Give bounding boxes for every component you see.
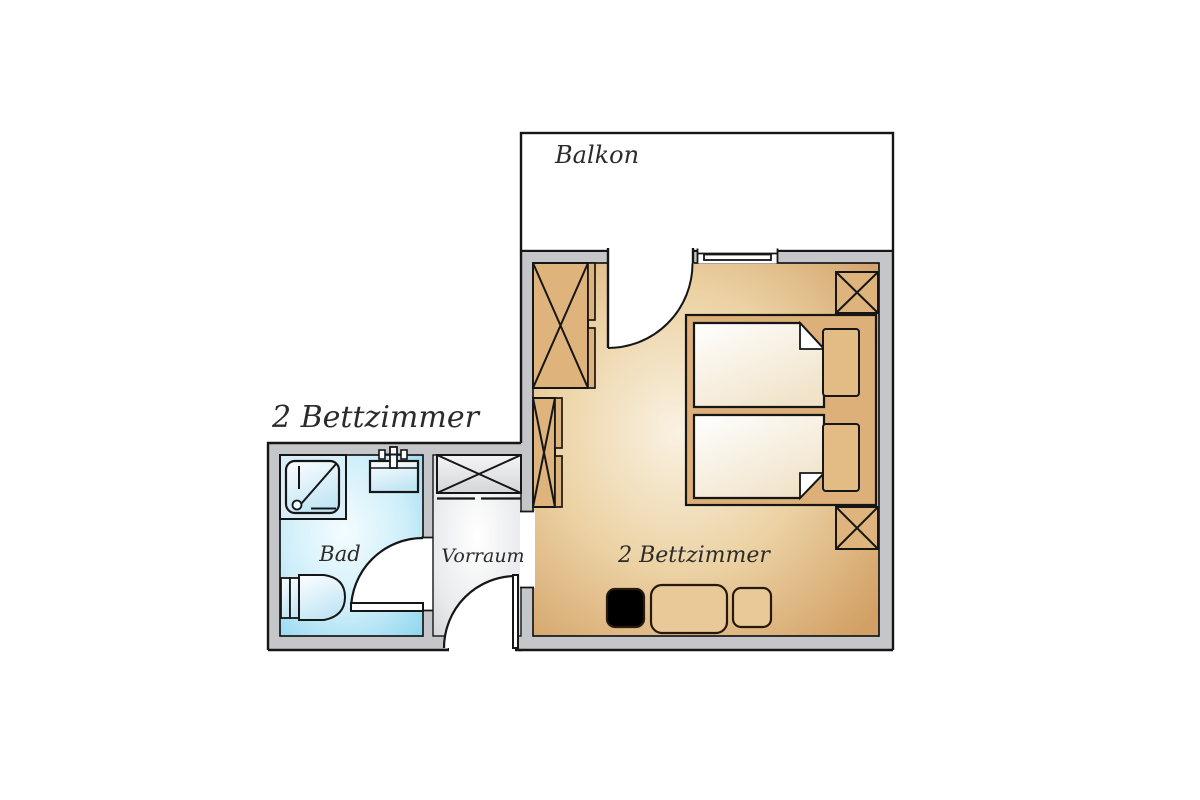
bedroom: 2 Bettzimmer: [519, 247, 893, 650]
double-bed: [686, 315, 876, 505]
toilet-bowl: [299, 575, 345, 620]
vestibule-label: Vorraum: [441, 545, 524, 567]
wardrobe-lower-door-a: [555, 398, 562, 448]
pillow-bottom: [823, 424, 859, 491]
chair-left: [607, 589, 644, 627]
entrance-door-leaf: [513, 575, 518, 648]
bathroom-label: Bad: [318, 542, 360, 566]
toilet-tank-left: [281, 578, 290, 618]
vestibule-closet: [437, 455, 521, 499]
balcony: Balkon: [521, 133, 893, 251]
seating-group: [607, 585, 771, 633]
shower: [280, 455, 346, 519]
bath-vestibule-block: Bad Vorraum: [268, 443, 535, 651]
pillow-top: [823, 329, 859, 396]
toilet-tank-right: [290, 578, 299, 618]
vestibule: Vorraum: [433, 455, 535, 651]
faucet-handle-left: [379, 450, 385, 459]
faucet-handle-right: [401, 450, 407, 459]
plan-title: 2 Bettzimmer: [271, 400, 481, 435]
toilet: [281, 575, 345, 620]
wardrobe-lower-door-b: [555, 456, 562, 507]
closet-bottom-right: [836, 507, 878, 549]
balcony-label: Balkon: [554, 141, 639, 169]
bathroom-door-leaf: [351, 603, 423, 611]
wardrobe-upper-door-a: [588, 263, 595, 320]
chair-right: [733, 588, 771, 627]
bathroom: Bad: [280, 447, 435, 636]
wardrobe-upper: [533, 263, 595, 388]
shower-drain-icon: [293, 501, 302, 510]
floor-plan-canvas: Balkon: [0, 0, 1200, 800]
balcony-window: [697, 248, 778, 264]
bedroom-label: 2 Bettzimmer: [617, 543, 771, 568]
faucet-spout: [390, 447, 397, 468]
table: [651, 585, 727, 633]
closet-top-right: [836, 272, 878, 313]
window-glazing: [704, 255, 771, 261]
floor-plan-drawing: Balkon: [0, 0, 1200, 800]
wardrobe-upper-door-b: [588, 328, 595, 388]
balcony-door-opening: [607, 247, 694, 264]
